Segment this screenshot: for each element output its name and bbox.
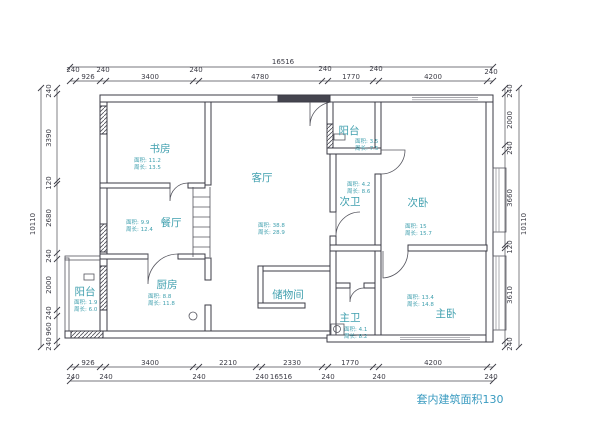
wall-outer-right: [486, 102, 493, 342]
wall-mid-left: [330, 245, 381, 251]
window-balcony-bottom: [71, 331, 103, 338]
wall-bathmaster-left: [330, 251, 336, 335]
window-study-left: [100, 106, 107, 134]
room-perimeter-dining: 周长: 12.4: [126, 225, 153, 233]
dim-left-2: 120: [45, 176, 53, 189]
room-label-storage: 储物间: [272, 288, 304, 301]
dim-bottom-11: 4200: [424, 359, 442, 367]
stair-ladder-symbol: [193, 187, 210, 257]
room-perimeter-bath2: 周长: 8.6: [347, 187, 371, 195]
door-bedroom2: [381, 150, 405, 174]
bay-window-master: [493, 256, 506, 330]
room-label-bedroom2: 次卧: [408, 196, 429, 209]
room-perimeter-bedroom-master: 周长: 14.8: [407, 300, 434, 308]
dimension-text-right: 10110 240 2000 240 3660 120 3610 240: [506, 84, 528, 350]
room-perimeter-study: 周长: 13.5: [134, 163, 161, 171]
room-perimeter-bath-master: 周长: 8.2: [344, 332, 367, 340]
room-label-dining: 餐厅: [161, 216, 182, 229]
drawing-caption: 套内建筑面积130: [417, 392, 504, 406]
dim-top-2: 240: [96, 66, 109, 74]
wall-storage-left: [258, 266, 263, 308]
wall-bathmaster-top-right: [364, 283, 375, 288]
wall-study-dining-stub: [188, 183, 205, 188]
dim-left-7: 960: [45, 322, 53, 335]
dim-top-0: 240: [66, 66, 79, 74]
dimension-text-top: 16516 240 926 240 3400 240 4780 240 1770…: [66, 58, 497, 81]
dim-bottom-6: 240: [255, 373, 268, 381]
wall-dining-kitchen: [100, 254, 148, 259]
door-balcony-left: [84, 274, 94, 280]
dim-left-3: 2680: [45, 209, 53, 227]
wall-bottom-left: [65, 331, 333, 338]
dim-bottom-12: 240: [484, 373, 497, 381]
room-label-balcony-top: 阳台: [339, 124, 360, 137]
wall-storage-top: [258, 266, 330, 271]
room-area-dining: 面积: 9.9: [126, 219, 150, 226]
dim-bottom-total: 16516: [270, 373, 293, 381]
room-perimeter-living: 周长: 28.9: [258, 228, 285, 236]
dim-left-1: 3390: [45, 129, 53, 147]
door-bath2: [336, 212, 360, 236]
dim-bottom-4: 240: [192, 373, 205, 381]
dim-top-10: 240: [484, 68, 497, 76]
dim-bottom-2: 240: [99, 373, 112, 381]
room-label-study: 书房: [150, 142, 171, 155]
wall-study-living: [205, 102, 211, 185]
wall-dining-kitchen-stub: [178, 254, 205, 259]
dim-top-3: 3400: [141, 73, 159, 81]
dim-bottom-5: 2210: [219, 359, 237, 367]
dim-bottom-10: 240: [372, 373, 385, 381]
dim-right-total: 10110: [520, 213, 528, 235]
dim-left-8: 240: [45, 337, 53, 350]
dim-top-7: 1770: [342, 73, 360, 81]
dim-top-4: 240: [189, 66, 202, 74]
dim-right-2: 240: [506, 141, 514, 154]
wall-bathmaster-top-left: [336, 283, 350, 288]
room-area-study: 面积: 11.2: [134, 157, 161, 164]
dim-left-4: 240: [45, 249, 53, 262]
dim-top-9: 4200: [424, 73, 442, 81]
dim-bottom-9: 1770: [341, 359, 359, 367]
room-perimeter-balcony-left: 周长: 6.0: [74, 305, 98, 313]
dim-left-total: 10110: [29, 213, 37, 235]
wall-bathmaster-master-divider: [375, 251, 381, 335]
wall-study-dining: [100, 183, 170, 188]
room-label-balcony-left: 阳台: [75, 285, 96, 298]
window-balconytop-left: [327, 124, 333, 148]
dim-left-6: 240: [45, 306, 53, 319]
window-dining-left: [100, 224, 107, 252]
window-kitchen-left: [100, 266, 107, 310]
dim-bottom-8: 240: [321, 373, 334, 381]
dim-bottom-0: 240: [66, 373, 79, 381]
balcony-left-top-rail: [65, 256, 100, 260]
room-label-bath2: 次卫: [340, 195, 361, 208]
dim-bottom-3: 3400: [141, 359, 159, 367]
room-area-bath-master: 面积: 4.1: [344, 326, 367, 333]
room-perimeter-balcony-top: 周长: 7.5: [355, 144, 379, 152]
door-bath-master: [350, 288, 364, 302]
balcony-left-outer-wall: [65, 258, 69, 331]
dim-top-6: 240: [318, 65, 331, 73]
room-area-bath2: 面积: 4.2: [347, 181, 370, 188]
wall-kitchen-right-upper: [205, 258, 211, 280]
dimension-text-bottom: 16516 240 926 240 3400 240 2210 240 2330…: [66, 359, 497, 381]
dim-top-5: 4780: [251, 73, 269, 81]
floorplan-drawing: 16516 240 926 240 3400 240 4780 240 1770…: [0, 0, 600, 442]
wall-storage-bottom: [258, 303, 305, 308]
room-area-bedroom2: 面积: 15: [405, 223, 427, 230]
room-label-kitchen: 厨房: [157, 278, 178, 291]
dim-right-1: 2000: [506, 111, 514, 129]
room-label-bedroom-master: 主卧: [436, 307, 457, 320]
wall-entry-solid: [278, 95, 330, 102]
bay-window-bedroom2-glazing: [496, 168, 499, 232]
bay-window-bedroom2: [493, 168, 506, 232]
door-bedroom-master: [383, 251, 408, 278]
dim-right-0: 240: [506, 84, 514, 97]
room-area-kitchen: 面积: 8.8: [148, 293, 172, 300]
room-area-living: 面积: 38.8: [258, 222, 285, 229]
walls: [65, 95, 506, 342]
dim-top-total: 16516: [272, 58, 295, 66]
door-dining: [170, 183, 188, 201]
dim-top-1: 926: [81, 73, 95, 81]
room-area-balcony-left: 面积: 1.9: [74, 299, 98, 306]
room-perimeter-kitchen: 周长: 11.8: [148, 299, 175, 307]
wall-master-top: [408, 245, 487, 251]
wall-kitchen-right-lower: [205, 305, 211, 331]
dim-bottom-1: 926: [81, 359, 95, 367]
room-area-bedroom-master: 面积: 13.4: [407, 294, 434, 301]
wall-bath2-left-upper: [330, 154, 336, 212]
room-label-bath-master: 主卫: [340, 312, 361, 324]
room-label-living: 客厅: [252, 171, 273, 184]
wall-bedroom2-left-lower: [375, 174, 381, 248]
floorplan-canvas: 16516 240 926 240 3400 240 4780 240 1770…: [0, 0, 600, 442]
dim-right-4: 120: [506, 240, 514, 253]
dim-bottom-7: 2330: [283, 359, 301, 367]
room-perimeter-bedroom2: 周长: 15.7: [405, 229, 432, 237]
room-area-balcony-top: 面积: 3.5: [355, 138, 379, 145]
kitchen-sink-icon: [189, 312, 197, 320]
dim-left-5: 2000: [45, 276, 53, 294]
dim-right-3: 3660: [506, 189, 514, 207]
bay-window-master-glazing: [496, 256, 499, 330]
dim-left-0: 240: [45, 84, 53, 97]
dim-top-8: 240: [369, 65, 382, 73]
dim-right-5: 3610: [506, 286, 514, 304]
dim-right-6: 240: [506, 337, 514, 350]
